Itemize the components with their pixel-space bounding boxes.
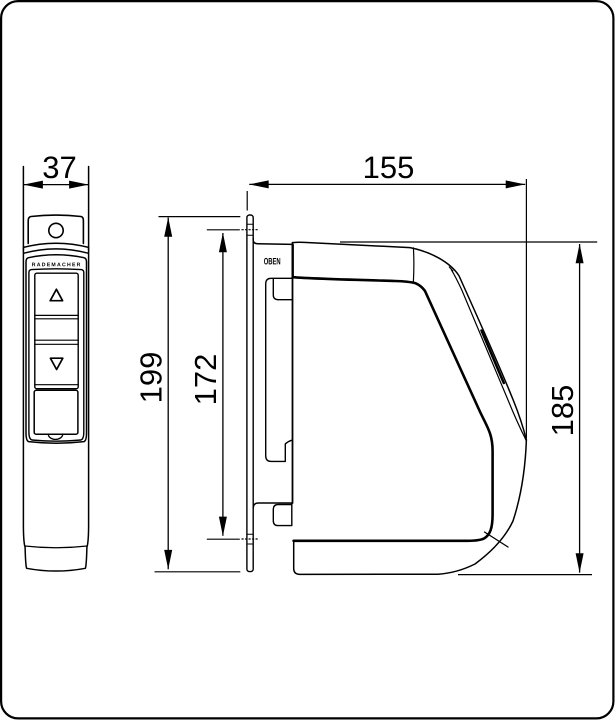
svg-text:199: 199: [133, 352, 168, 404]
svg-text:RADEMACHER: RADEMACHER: [32, 262, 82, 268]
svg-text:37: 37: [42, 150, 77, 185]
svg-text:155: 155: [363, 150, 415, 185]
svg-text:172: 172: [188, 354, 223, 406]
svg-text:185: 185: [545, 385, 580, 437]
svg-text:OBEN: OBEN: [264, 256, 281, 266]
